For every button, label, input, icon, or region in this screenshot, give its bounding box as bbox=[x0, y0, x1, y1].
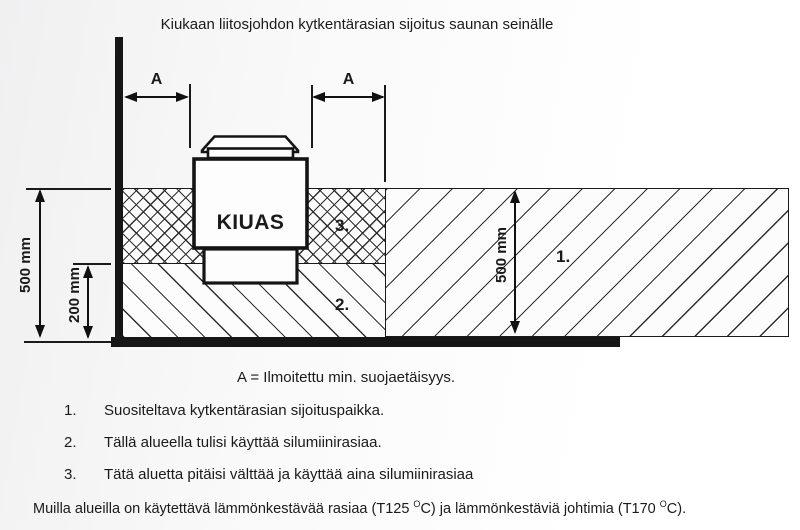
dim-500-left-arrow bbox=[34, 189, 46, 338]
heater-lid-rim bbox=[208, 149, 293, 159]
footer-note: Muilla alueilla on käytettävä lämmönkest… bbox=[33, 499, 686, 517]
arrowhead-right-icon bbox=[176, 92, 189, 102]
dim-500-left-label: 500 mm bbox=[18, 230, 34, 300]
zone-1-label: 1. bbox=[556, 247, 570, 267]
zone-1-area bbox=[385, 188, 789, 337]
legend-item-number: 2. bbox=[64, 434, 77, 451]
page-title: Kiukaan liitosjohdon kytkentärasian sijo… bbox=[161, 16, 554, 33]
footer-text: C) ja lämmönkestäviä johtimia (T170 bbox=[420, 501, 659, 517]
legend-item-text: Tällä alueella tulisi käyttää silumiinir… bbox=[104, 434, 382, 451]
dim-a-right-label: A bbox=[312, 71, 385, 89]
dim-a-right-arrow bbox=[312, 91, 385, 103]
extension-line bbox=[384, 85, 386, 182]
arrowhead-down-icon bbox=[35, 325, 45, 338]
extension-line bbox=[189, 84, 191, 148]
heater-label: KIUAS bbox=[194, 211, 307, 235]
degree-superscript: O bbox=[660, 499, 667, 509]
footer-text: Muilla alueilla on käytettävä lämmönkest… bbox=[33, 501, 413, 517]
legend-item-text: Tätä aluetta pitäisi välttää ja käyttää … bbox=[104, 466, 473, 483]
dim-a-left-arrow bbox=[124, 91, 189, 103]
zone-3-label: 3. bbox=[335, 216, 349, 236]
extension-line bbox=[311, 85, 313, 148]
dim-200-left-label: 200 mm bbox=[67, 260, 83, 330]
dim-line bbox=[39, 191, 41, 336]
dim-line bbox=[514, 192, 516, 332]
dim-200-left-arrow bbox=[82, 265, 94, 339]
arrowhead-down-icon bbox=[83, 326, 93, 339]
zone-2-label: 2. bbox=[335, 295, 349, 315]
heater-lid-top bbox=[202, 137, 298, 153]
legend-item-number: 3. bbox=[64, 466, 77, 483]
dim-a-left-label: A bbox=[124, 71, 189, 89]
extension-line bbox=[73, 263, 111, 265]
sauna-wall bbox=[115, 37, 123, 347]
extension-line bbox=[26, 188, 111, 190]
sauna-floor bbox=[111, 337, 620, 347]
dim-500-mid-arrow bbox=[509, 190, 521, 334]
footer-text: C). bbox=[667, 501, 686, 517]
legend-item-number: 1. bbox=[64, 402, 77, 419]
extension-line bbox=[24, 341, 111, 343]
legend-item-text: Suositeltava kytkentärasian sijoituspaik… bbox=[104, 402, 384, 419]
dim-a-definition: A = Ilmoitettu min. suojaetäisyys. bbox=[237, 369, 455, 386]
dim-500-mid-label: 500 mm bbox=[494, 220, 510, 290]
manual-page: Kiukaan liitosjohdon kytkentärasian sijo… bbox=[0, 0, 800, 530]
arrowhead-down-icon bbox=[510, 321, 520, 334]
